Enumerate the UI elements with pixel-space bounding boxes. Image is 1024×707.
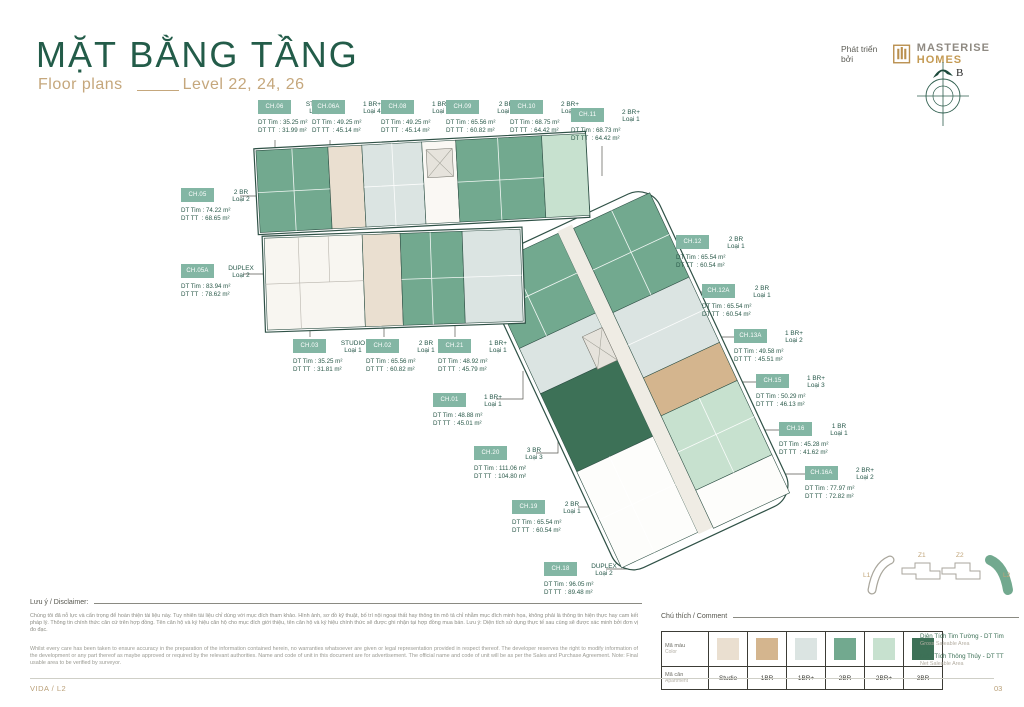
unit-type-label: 3 BRLoại 3 xyxy=(507,446,561,462)
unit-code-badge: CH.20 xyxy=(474,446,507,460)
unit-callout: CH.16 1 BRLoại 1 DT Tim : 45.28 m² DT TT… xyxy=(779,422,866,457)
disclaimer-text-vi: Chúng tôi đã nỗ lực và cẩn trọng để hoàn… xyxy=(30,613,638,634)
unit-area-gross: DT Tim : 48.92 m² xyxy=(438,358,525,366)
unit-code-badge: CH.12 xyxy=(676,235,709,249)
unit-area-net: DT TT : 104.80 m² xyxy=(474,473,561,481)
unit-type-label: 2 BRLoại 1 xyxy=(545,500,599,516)
unit-type-label: 2 BR+Loại 2 xyxy=(838,466,892,482)
unit-callout: CH.05 2 BRLoại 2 DT Tim : 74.22 m² DT TT… xyxy=(181,188,268,223)
unit-type-label: DUPLEXLoại 2 xyxy=(577,562,631,578)
unit-code-badge: CH.02 xyxy=(366,339,399,353)
unit-code-badge: CH.06A xyxy=(312,100,345,114)
unit-code-badge: CH.16 xyxy=(779,422,812,436)
unit-area-gross: DT Tim : 77.97 m² xyxy=(805,485,892,493)
unit-type-label: 1 BR+Loại 1 xyxy=(466,393,520,409)
unit-area-net: DT TT : 72.82 m² xyxy=(805,493,892,501)
unit-type-label: 2 BR+Loại 1 xyxy=(604,108,658,124)
legend-swatch-1br-plus xyxy=(795,638,817,660)
unit-code-badge: CH.10 xyxy=(510,100,543,114)
unit-type-label: 1 BR+Loại 3 xyxy=(789,374,843,390)
unit-code-badge: CH.09 xyxy=(446,100,479,114)
unit-area-net: DT TT : 78.62 m² xyxy=(181,291,268,299)
unit-callout: CH.20 3 BRLoại 3 DT Tim : 111.06 m² DT T… xyxy=(474,446,561,481)
unit-type-label: 2 BRLoại 1 xyxy=(709,235,763,251)
unit-type-label: 1 BR+Loại 1 xyxy=(471,339,525,355)
unit-type-label: 1 BR+Loại 2 xyxy=(767,329,821,345)
legend-table: Mã màu Color Mã căn Apartment Studio 1BR… xyxy=(661,631,943,690)
unit-areas: DT Tim : 77.97 m² DT TT : 72.82 m² xyxy=(805,485,892,501)
unit-callout: CH.12A 2 BRLoại 1 DT Tim : 65.54 m² DT T… xyxy=(702,284,789,319)
unit-area-gross: DT Tim : 96.05 m² xyxy=(544,581,631,589)
unit-code-badge: CH.06 xyxy=(258,100,291,114)
disclaimer-rule xyxy=(94,602,642,604)
floor-plan-page: { "header": { "title": "MẶT BẰNG TẦNG", … xyxy=(0,0,1024,707)
unit-areas: DT Tim : 49.58 m² DT TT : 45.51 m² xyxy=(734,348,821,364)
legend-swatch-2br-plus xyxy=(873,638,895,660)
zone-label-l2: L2 xyxy=(1003,572,1010,579)
unit-areas: DT Tim : 48.88 m² DT TT : 45.01 m² xyxy=(433,412,520,428)
legend-heading: Chú thích / Comment xyxy=(661,613,727,620)
legend-rule xyxy=(733,616,1019,618)
unit-callout: CH.15 1 BR+Loại 3 DT Tim : 50.29 m² DT T… xyxy=(756,374,843,409)
unit-callout: CH.16A 2 BR+Loại 2 DT Tim : 77.97 m² DT … xyxy=(805,466,892,501)
unit-area-net: DT TT : 46.13 m² xyxy=(756,401,843,409)
unit-area-net: DT TT : 60.54 m² xyxy=(512,527,599,535)
legend-heading-row: Chú thích / Comment xyxy=(661,613,1019,620)
unit-code-badge: CH.11 xyxy=(571,108,604,122)
unit-area-net: DT TT : 45.01 m² xyxy=(433,420,520,428)
building-bar-middle xyxy=(262,227,525,332)
zone-label-z2: Z2 xyxy=(956,552,964,559)
area-term-net: Diện Tích Thông Thủy - DT TT Net Saleabl… xyxy=(920,653,1020,668)
unit-area-net: DT TT : 45.51 m² xyxy=(734,356,821,364)
unit-area-gross: DT Tim : 49.58 m² xyxy=(734,348,821,356)
footer-divider xyxy=(30,678,994,679)
unit-area-gross: DT Tim : 65.54 m² xyxy=(512,519,599,527)
unit-code-badge: CH.08 xyxy=(381,100,414,114)
legend-color-row: Mã màu Color xyxy=(662,632,943,667)
zone-label-l1: L1 xyxy=(863,572,870,579)
legend-swatch-1br xyxy=(756,638,778,660)
unit-area-gross: DT Tim : 111.06 m² xyxy=(474,465,561,473)
unit-area-gross: DT Tim : 74.22 m² xyxy=(181,207,268,215)
unit-areas: DT Tim : 50.29 m² DT TT : 46.13 m² xyxy=(756,393,843,409)
unit-areas: DT Tim : 96.05 m² DT TT : 89.48 m² xyxy=(544,581,631,597)
unit-areas: DT Tim : 45.28 m² DT TT : 41.62 m² xyxy=(779,441,866,457)
legend-swatch-studio xyxy=(717,638,739,660)
unit-code-badge: CH.05A xyxy=(181,264,214,278)
unit-code-badge: CH.03 xyxy=(293,339,326,353)
disclaimer-text-en: Whilst every care has been taken to ensu… xyxy=(30,646,638,667)
unit-area-gross: DT Tim : 65.54 m² xyxy=(676,254,763,262)
unit-area-gross: DT Tim : 68.73 m² xyxy=(571,127,658,135)
unit-area-net: DT TT : 45.79 m² xyxy=(438,366,525,374)
unit-code-badge: CH.05 xyxy=(181,188,214,202)
unit-code-badge: CH.13A xyxy=(734,329,767,343)
disclaimer-heading-row: Lưu ý / Disclaimer: xyxy=(30,599,642,606)
disclaimer-heading: Lưu ý / Disclaimer: xyxy=(30,599,88,606)
unit-callout: CH.11 2 BR+Loại 1 DT Tim : 68.73 m² DT T… xyxy=(571,108,658,143)
unit-area-net: DT TT : 64.42 m² xyxy=(571,135,658,143)
unit-callout: CH.05A DUPLEXLoại 2 DT Tim : 83.94 m² DT… xyxy=(181,264,268,299)
unit-code-badge: CH.12A xyxy=(702,284,735,298)
unit-area-net: DT TT : 68.65 m² xyxy=(181,215,268,223)
footer-page-number: 03 xyxy=(994,684,1002,693)
zone-label-z1: Z1 xyxy=(918,552,926,559)
unit-area-gross: DT Tim : 65.54 m² xyxy=(702,303,789,311)
unit-callout: CH.12 2 BRLoại 1 DT Tim : 65.54 m² DT TT… xyxy=(676,235,763,270)
unit-code-badge: CH.19 xyxy=(512,500,545,514)
unit-area-gross: DT Tim : 48.88 m² xyxy=(433,412,520,420)
unit-area-gross: DT Tim : 50.29 m² xyxy=(756,393,843,401)
unit-areas: DT Tim : 65.54 m² DT TT : 60.54 m² xyxy=(702,303,789,319)
unit-type-label: 1 BRLoại 1 xyxy=(812,422,866,438)
unit-area-gross: DT Tim : 45.28 m² xyxy=(779,441,866,449)
unit-area-net: DT TT : 41.62 m² xyxy=(779,449,866,457)
legend-color-row-label: Mã màu Color xyxy=(662,632,709,667)
unit-code-badge: CH.15 xyxy=(756,374,789,388)
unit-areas: DT Tim : 83.94 m² DT TT : 78.62 m² xyxy=(181,283,268,299)
unit-callout: CH.18 DUPLEXLoại 2 DT Tim : 96.05 m² DT … xyxy=(544,562,631,597)
unit-code-badge: CH.16A xyxy=(805,466,838,480)
unit-code-badge: CH.18 xyxy=(544,562,577,576)
area-term-gross: Diện Tích Tim Tường - DT Tim Gross Salea… xyxy=(920,633,1020,648)
unit-callout: CH.13A 1 BR+Loại 2 DT Tim : 49.58 m² DT … xyxy=(734,329,821,364)
unit-callout: CH.21 1 BR+Loại 1 DT Tim : 48.92 m² DT T… xyxy=(438,339,525,374)
unit-area-gross: DT Tim : 83.94 m² xyxy=(181,283,268,291)
site-key-plan xyxy=(860,552,1020,604)
unit-areas: DT Tim : 74.22 m² DT TT : 68.65 m² xyxy=(181,207,268,223)
legend-swatch-2br xyxy=(834,638,856,660)
unit-areas: DT Tim : 65.54 m² DT TT : 60.54 m² xyxy=(676,254,763,270)
building-wing-top xyxy=(254,131,590,234)
unit-area-net: DT TT : 60.54 m² xyxy=(702,311,789,319)
unit-type-label: 2 BRLoại 1 xyxy=(735,284,789,300)
unit-areas: DT Tim : 48.92 m² DT TT : 45.79 m² xyxy=(438,358,525,374)
unit-areas: DT Tim : 111.06 m² DT TT : 104.80 m² xyxy=(474,465,561,481)
unit-callout: CH.01 1 BR+Loại 1 DT Tim : 48.88 m² DT T… xyxy=(433,393,520,428)
unit-areas: DT Tim : 65.54 m² DT TT : 60.54 m² xyxy=(512,519,599,535)
unit-callout: CH.19 2 BRLoại 1 DT Tim : 65.54 m² DT TT… xyxy=(512,500,599,535)
unit-code-badge: CH.01 xyxy=(433,393,466,407)
unit-area-net: DT TT : 89.48 m² xyxy=(544,589,631,597)
unit-type-label: 2 BRLoại 2 xyxy=(214,188,268,204)
footer-project-code: VIDA / L2 xyxy=(30,684,66,693)
unit-area-net: DT TT : 60.54 m² xyxy=(676,262,763,270)
unit-type-label: DUPLEXLoại 2 xyxy=(214,264,268,280)
unit-areas: DT Tim : 68.73 m² DT TT : 64.42 m² xyxy=(571,127,658,143)
unit-code-badge: CH.21 xyxy=(438,339,471,353)
